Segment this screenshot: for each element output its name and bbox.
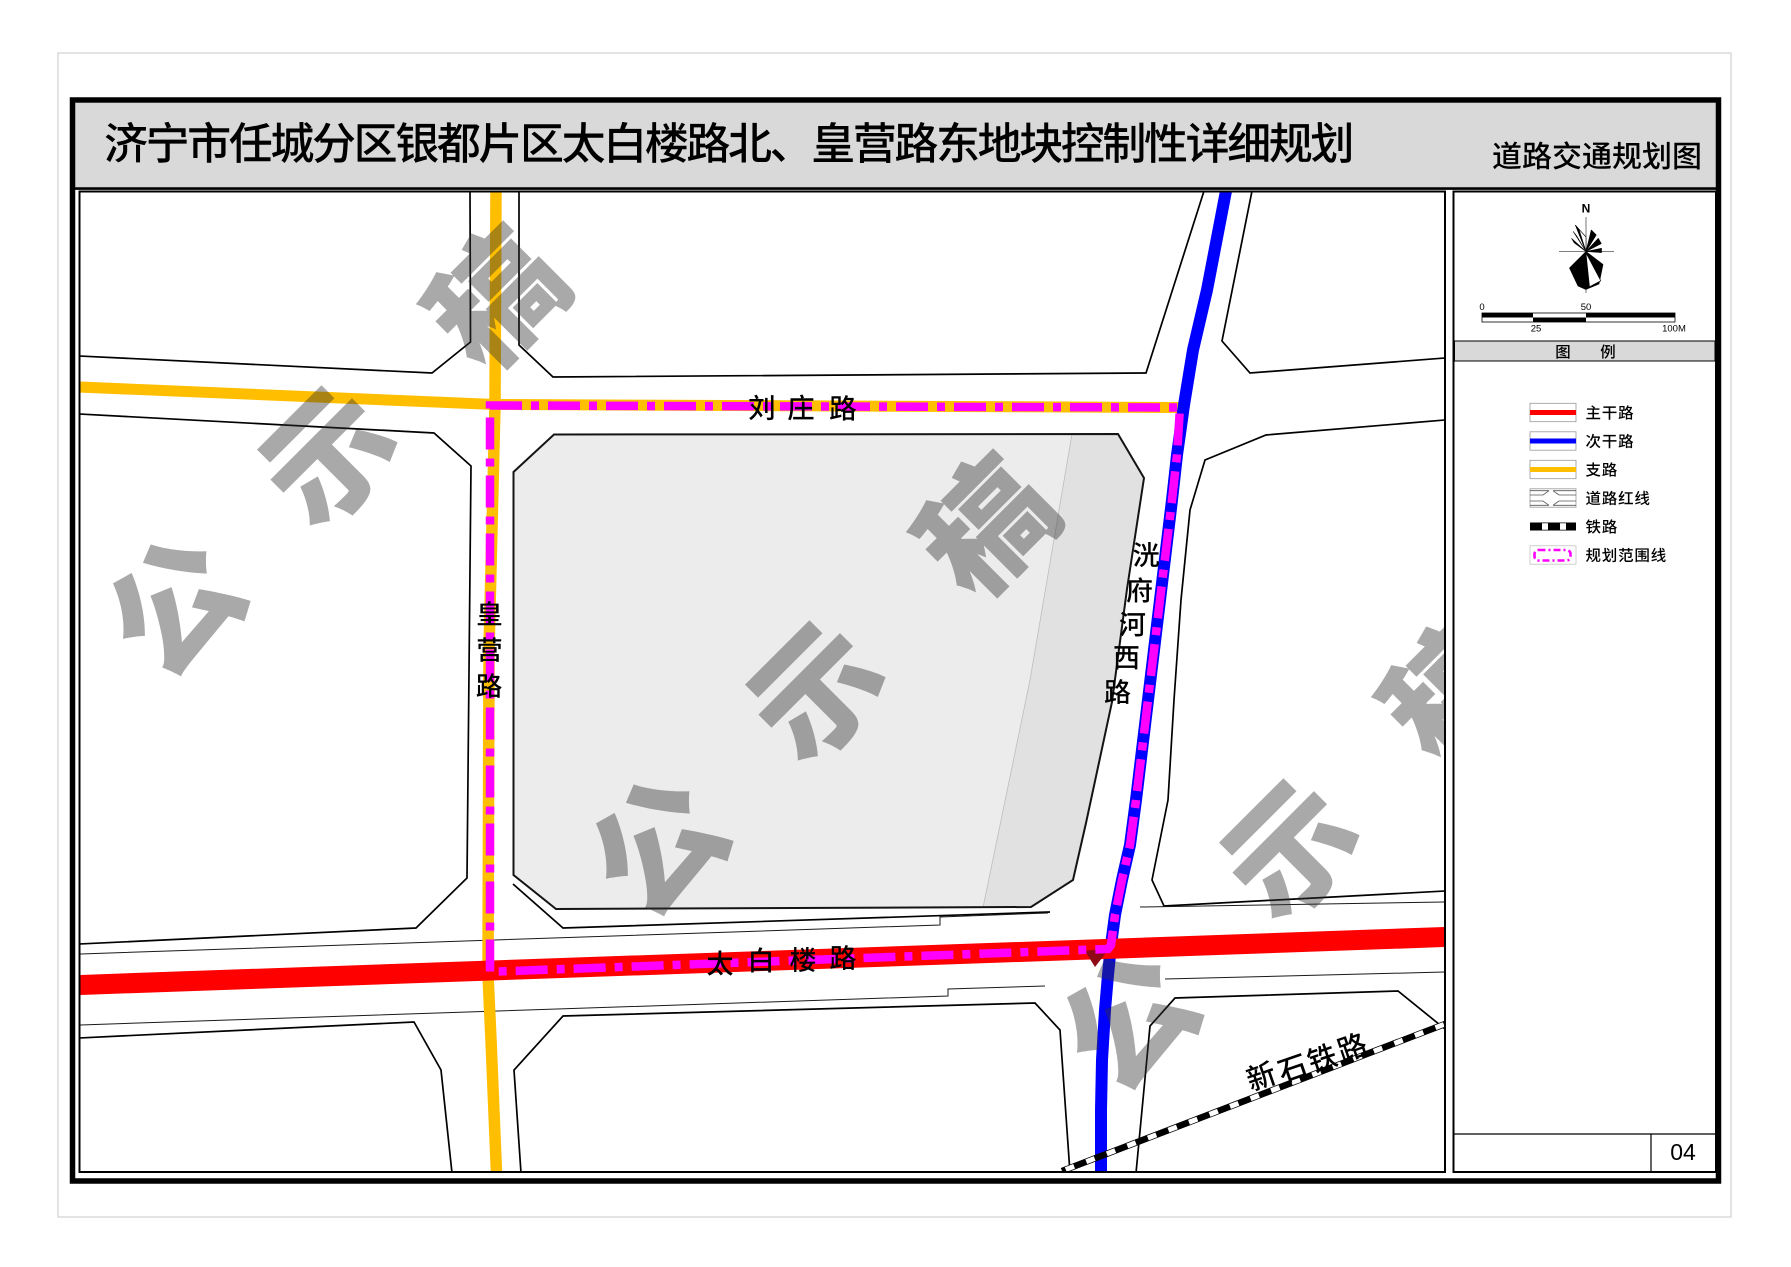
svg-text:50: 50 <box>1581 302 1592 313</box>
svg-text:100M: 100M <box>1662 324 1686 335</box>
svg-text:25: 25 <box>1531 324 1542 335</box>
svg-text:N: N <box>1582 202 1591 216</box>
svg-text:04: 04 <box>1670 1139 1696 1165</box>
svg-text:0: 0 <box>1479 302 1484 313</box>
